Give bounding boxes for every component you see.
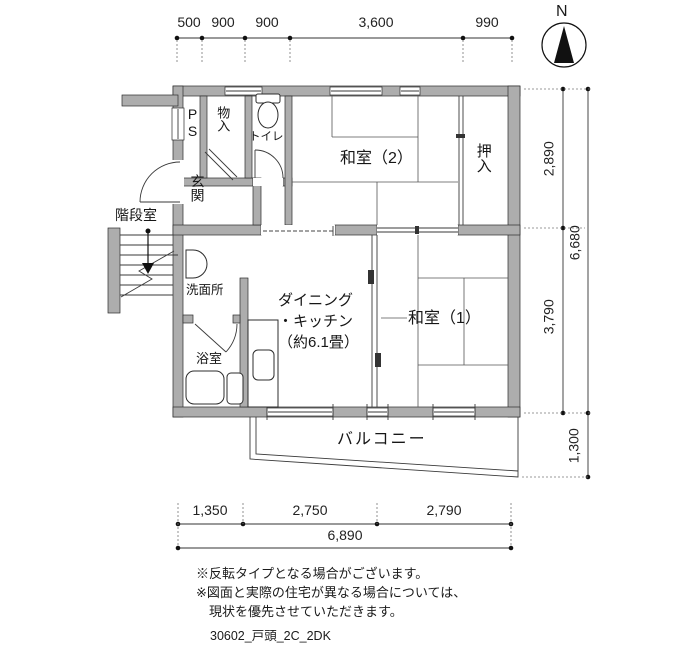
dim-top-4: 3,600 <box>346 14 406 32</box>
dim-bottom-1: 1,350 <box>180 502 240 520</box>
closet-door <box>456 96 465 225</box>
stairs <box>108 95 178 313</box>
room-label-oshiire: 押入 <box>473 143 492 173</box>
room-label-dining-kitchen: ダイニング ・キッチン （約6.1畳） <box>278 290 359 353</box>
disclaimer-notes: ※反転タイプとなる場合がございます。 ※図面と実際の住宅が異なる場合については、… <box>196 564 466 621</box>
outer-walls <box>173 86 520 417</box>
north-label: N <box>556 2 568 22</box>
room-label-ps: PS <box>183 106 201 140</box>
plan-code: 30602_戸頭_2C_2DK <box>210 629 331 645</box>
bath-door-arc <box>226 324 237 352</box>
toilet-door-arc <box>255 150 283 178</box>
dim-right-total: 6,680 <box>566 213 584 273</box>
windows <box>172 87 475 420</box>
dim-bottom-total: 6,890 <box>315 527 375 545</box>
room-label-washitsu1: 和室（1） <box>408 309 481 329</box>
north-arrow-icon <box>542 23 586 67</box>
dim-bottom-3: 2,790 <box>414 502 474 520</box>
room-label-bathroom: 浴室 <box>196 351 222 367</box>
dim-top-3: 900 <box>237 14 297 32</box>
room-label-balcony: バルコニー <box>337 430 427 450</box>
room-label-monoire: 物入 <box>214 106 230 132</box>
room-label-stairwell: 階段室 <box>115 207 157 225</box>
washer-pan-icon <box>186 250 207 278</box>
room-label-genkan: 玄関 <box>188 174 206 202</box>
dim-top-5: 990 <box>457 14 517 32</box>
bathtub-icon <box>186 371 224 404</box>
dim-right-lower: 3,790 <box>540 287 558 347</box>
dim-right-upper: 2,890 <box>540 129 558 189</box>
dimension-lines <box>175 36 591 551</box>
sink-icon <box>253 350 274 380</box>
room-label-washroom: 洗面所 <box>186 283 224 299</box>
floor-plan-page: 500 900 900 3,600 990 N 2,890 3,790 6,68… <box>0 0 700 650</box>
entrance-opening <box>172 160 184 204</box>
interior-walls <box>173 96 520 407</box>
sliding-partition <box>368 235 381 407</box>
room-label-washitsu2: 和室（2） <box>340 149 413 169</box>
dim-right-balcony: 1,300 <box>565 416 583 476</box>
room-label-toilet: トイレ <box>249 130 284 144</box>
kitchen-counter <box>248 320 278 407</box>
dim-bottom-2: 2,750 <box>280 502 340 520</box>
toilet-icon <box>256 94 280 128</box>
